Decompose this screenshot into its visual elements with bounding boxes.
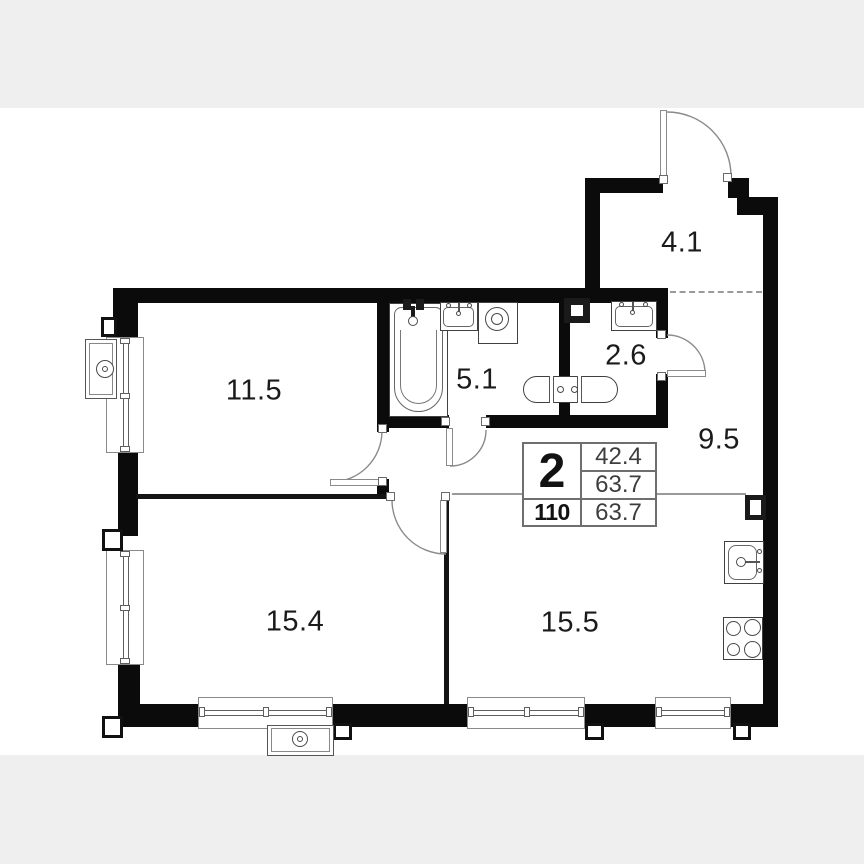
wall-bedroom-living	[136, 494, 392, 499]
living-door-arc	[392, 500, 446, 554]
wall-step-top-right-2	[737, 197, 778, 215]
door-post	[481, 417, 490, 426]
wall-bath-south-right	[486, 415, 560, 428]
bath-faucet-handle	[416, 299, 424, 310]
wc-door-arc	[667, 335, 705, 373]
entry-door-arc	[667, 112, 731, 176]
area-middle-value: 63.7	[582, 472, 655, 498]
wall-wc-south	[558, 415, 668, 428]
area-top-value: 42.4	[582, 444, 655, 470]
room-area-label-bathroom: 5.1	[456, 364, 498, 397]
door-post	[386, 492, 395, 501]
bedroom-door-arc	[331, 431, 382, 482]
apartment-info-table: 2 110 42.4 63.7 63.7	[522, 442, 657, 527]
facade-pier-2	[102, 529, 123, 551]
room-area-label-corridor: 9.5	[698, 424, 740, 457]
room-area-label-bedroom: 11.5	[226, 375, 282, 408]
entry-door-leaf	[660, 110, 667, 177]
bath-faucet-spout	[408, 316, 418, 326]
apartment-number: 110	[524, 500, 580, 525]
bath-faucet-handle	[403, 299, 411, 310]
bedroom-door-leaf	[330, 479, 382, 486]
wall-east	[763, 197, 778, 727]
facade-pier-4	[333, 723, 352, 740]
bathroom-door-arc	[450, 430, 486, 466]
room-area-label-wc: 2.6	[605, 340, 647, 373]
door-post	[723, 173, 732, 182]
facade-pier-6	[733, 723, 751, 740]
door-post	[659, 175, 668, 184]
area-bottom-value: 63.7	[582, 500, 655, 525]
room-area-label-living: 15.4	[266, 606, 324, 639]
wall-west-pier	[118, 452, 138, 536]
room-area-label-kitchen: 15.5	[541, 607, 599, 640]
room-area-label-entry-hall: 4.1	[661, 227, 703, 260]
wall-wc-east-bottom	[656, 374, 668, 428]
window-kitchen-south-1	[467, 697, 585, 729]
top-margin-strip	[0, 0, 864, 108]
window-kitchen-south-2	[655, 697, 731, 729]
wc-door-leaf	[667, 370, 706, 377]
vent-shaft-right-icon	[745, 495, 766, 520]
wall-bedroom-bath	[377, 302, 389, 432]
door-post	[441, 492, 450, 501]
rooms-count: 2	[524, 444, 580, 498]
bathtub-inner-curve	[400, 330, 437, 404]
bottom-margin-strip	[0, 755, 864, 864]
facade-pier-3	[102, 716, 123, 738]
window-living-west	[106, 550, 144, 665]
door-post	[378, 424, 387, 433]
zone-line-hall-corridor	[670, 291, 762, 293]
floor-plan: 11.5 5.1 2.6 4.1 9.5 15.4 15.5 2 110 42.…	[0, 0, 864, 864]
facade-pier-1	[101, 317, 117, 337]
living-door-leaf	[440, 500, 447, 553]
zone-line-kitchen-right	[657, 493, 746, 495]
door-post	[378, 477, 387, 486]
door-post	[441, 417, 450, 426]
vent-shaft-top-icon	[564, 298, 590, 323]
zone-line-kitchen-left	[452, 493, 522, 495]
door-post	[657, 372, 666, 381]
facade-pier-5	[585, 723, 604, 740]
wall-entry-west	[585, 178, 600, 291]
bathroom-door-leaf	[446, 428, 453, 466]
door-post	[657, 330, 666, 339]
